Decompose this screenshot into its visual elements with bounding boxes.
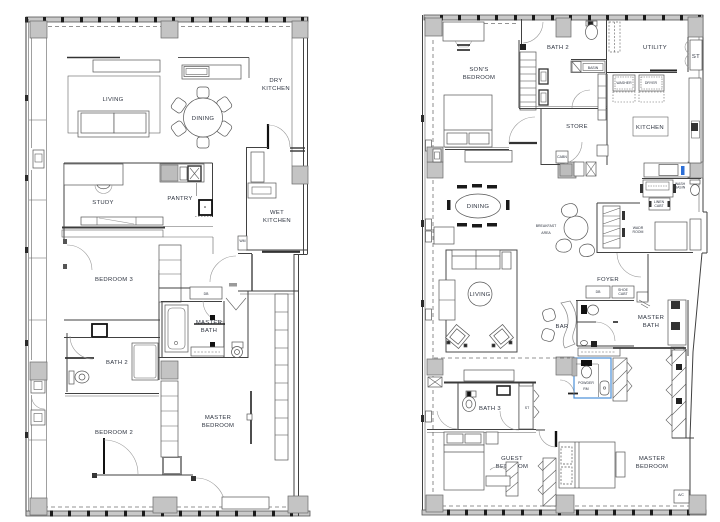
svg-text:BATH 3: BATH 3 <box>479 406 501 412</box>
svg-text:CABT: CABT <box>654 204 664 208</box>
svg-text:MASTER: MASTER <box>205 415 231 421</box>
svg-text:BAR: BAR <box>555 324 568 330</box>
svg-text:BATH 2: BATH 2 <box>547 45 569 51</box>
svg-text:BEDROOM 2: BEDROOM 2 <box>95 430 133 436</box>
svg-text:A/C: A/C <box>678 493 684 497</box>
svg-text:DRY: DRY <box>269 78 282 84</box>
svg-text:DINING: DINING <box>192 116 215 122</box>
svg-text:POWDER: POWDER <box>578 381 594 385</box>
svg-text:BEDROOM 3: BEDROOM 3 <box>95 277 133 283</box>
svg-text:KITCHEN: KITCHEN <box>636 125 664 131</box>
svg-text:DINING: DINING <box>467 204 490 210</box>
svg-text:CABT: CABT <box>618 292 628 296</box>
svg-text:ROOM: ROOM <box>633 230 644 234</box>
svg-text:STORE: STORE <box>566 124 588 130</box>
svg-text:BATH 2: BATH 2 <box>106 360 128 366</box>
svg-text:KITCHEN: KITCHEN <box>263 218 291 224</box>
svg-text:BEDROOM: BEDROOM <box>636 464 669 470</box>
svg-text:LIVING: LIVING <box>469 292 490 298</box>
svg-text:BASIN: BASIN <box>588 66 599 70</box>
svg-text:FOYER: FOYER <box>597 277 619 283</box>
svg-text:WM: WM <box>239 239 245 243</box>
svg-text:KITCHEN: KITCHEN <box>262 86 290 92</box>
svg-text:MASTER: MASTER <box>196 320 222 326</box>
svg-text:RM: RM <box>583 387 589 391</box>
svg-text:BATH: BATH <box>201 328 217 334</box>
svg-text:LIVING: LIVING <box>102 97 123 103</box>
svg-text:AREA: AREA <box>541 231 551 235</box>
svg-text:BEDROOM: BEDROOM <box>202 423 235 429</box>
svg-text:SON'S: SON'S <box>469 67 488 73</box>
svg-text:DB: DB <box>596 290 602 294</box>
svg-text:PANTRY: PANTRY <box>167 196 192 202</box>
svg-text:BASIN: BASIN <box>675 186 686 190</box>
svg-text:DB: DB <box>204 292 210 296</box>
svg-text:BATH: BATH <box>643 323 659 329</box>
svg-text:UTILITY: UTILITY <box>643 45 667 51</box>
svg-text:MASTER: MASTER <box>639 456 665 462</box>
svg-text:WET: WET <box>270 210 284 216</box>
svg-text:CABN: CABN <box>557 155 567 159</box>
svg-text:GUEST: GUEST <box>501 456 523 462</box>
svg-text:BREAKFAST: BREAKFAST <box>536 224 557 228</box>
svg-text:MASTER: MASTER <box>638 315 664 321</box>
svg-text:WASHER: WASHER <box>616 81 632 85</box>
svg-text:BEDROOM: BEDROOM <box>463 75 496 81</box>
svg-text:ST: ST <box>692 54 700 60</box>
svg-text:DRYER: DRYER <box>645 81 658 85</box>
svg-text:STUDY: STUDY <box>92 200 113 206</box>
